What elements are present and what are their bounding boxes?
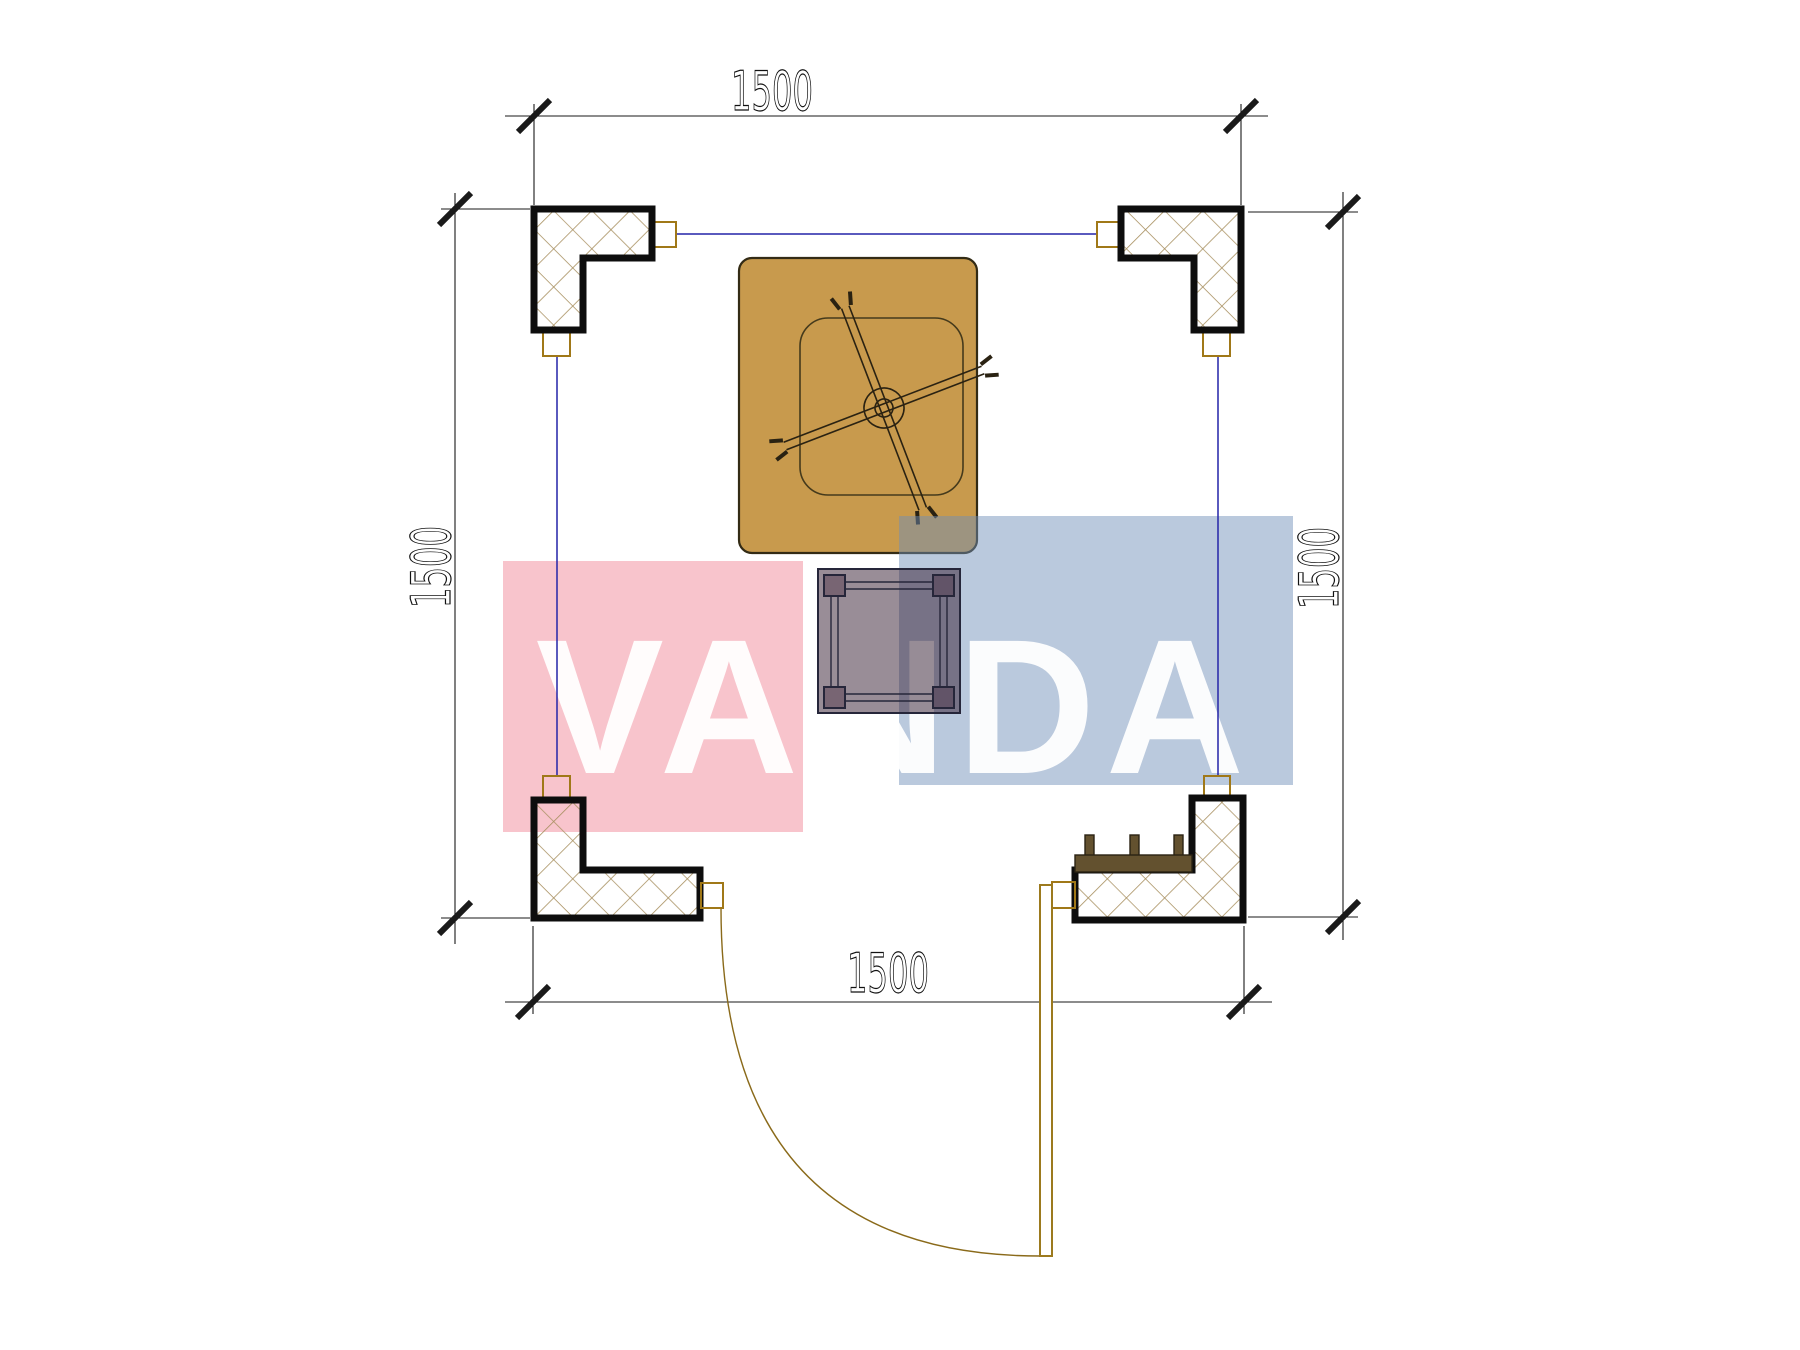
floor-plan-page: 1500 1500 1500 1500 V xyxy=(0,0,1800,1350)
column-top-right xyxy=(1121,209,1241,330)
table-top xyxy=(739,258,977,553)
dimension-label-top: 1500 xyxy=(731,60,813,123)
floor-plan-canvas: 1500 1500 1500 1500 V xyxy=(0,0,1800,1350)
dimension-label-right: 1500 xyxy=(1288,527,1351,609)
door-hinge-bracket xyxy=(701,883,723,908)
dimension-label-left: 1500 xyxy=(400,526,463,608)
small-square-table xyxy=(818,569,960,713)
column-top-left xyxy=(534,209,652,330)
bench-post xyxy=(1130,835,1139,857)
dimension-label-bottom: 1500 xyxy=(847,942,929,1005)
door-leaf xyxy=(1040,885,1052,1256)
bench-seat xyxy=(1075,855,1192,872)
bench-post xyxy=(1174,835,1183,857)
dimension-top xyxy=(505,100,1268,205)
door xyxy=(701,882,1075,1256)
bench-with-posts xyxy=(1075,835,1192,872)
bench-post xyxy=(1085,835,1094,857)
